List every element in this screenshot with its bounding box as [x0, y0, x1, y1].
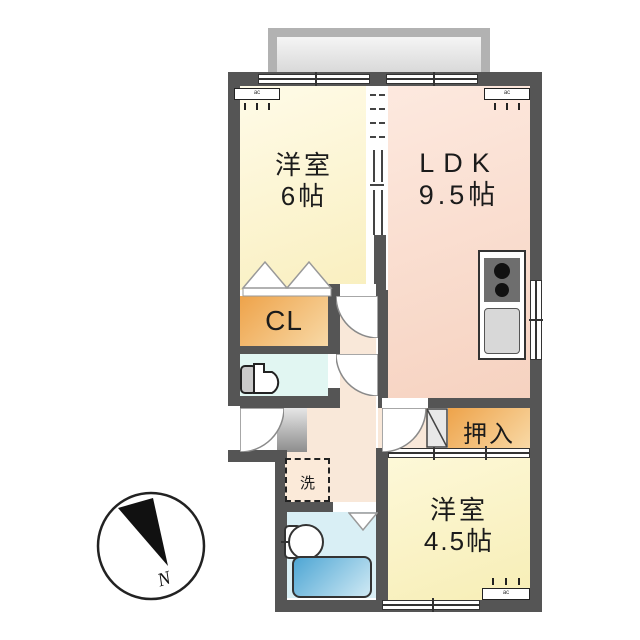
stove-burner-icon — [495, 283, 509, 297]
ldk-label: LDK 9.5帖 — [388, 148, 530, 212]
wall-bath-top — [275, 502, 333, 512]
folding-door — [348, 512, 378, 532]
sliding-window-top-right — [386, 74, 478, 84]
toilet-icon — [238, 360, 294, 398]
aircon-room45: ac — [482, 588, 530, 600]
toilet-swing-door — [336, 354, 378, 396]
laundry-label: 洗 — [285, 472, 330, 493]
compass-north: N — [94, 489, 208, 603]
opening-room6-door — [340, 284, 376, 296]
western-room-45-label: 洋室 4.5帖 — [388, 495, 530, 556]
stove-burner-icon — [494, 263, 510, 279]
opening-bath-door — [333, 502, 376, 512]
sliding-window-top-left — [258, 74, 370, 84]
western-room-6-label: 洋室 6帖 — [240, 150, 368, 211]
diagonal-cabinet — [426, 408, 448, 448]
oshiire-label: 押入 — [448, 414, 530, 449]
bifold-closet-door — [241, 258, 333, 298]
kitchen-sink — [484, 308, 520, 354]
aircon-room6: ac — [234, 88, 280, 100]
wall-ldk-west — [378, 290, 388, 408]
opening-ldk-door — [382, 398, 428, 408]
aircon-ldk: ac — [484, 88, 530, 100]
closet-label: CL — [240, 305, 328, 337]
kitchen-window — [530, 280, 542, 360]
wall-cl-toilet — [228, 346, 340, 354]
ldk-swing-door — [382, 408, 426, 452]
room6-swing-door — [336, 296, 378, 338]
bathtub — [292, 556, 372, 598]
opening-entry-door — [228, 406, 240, 450]
floorplan-canvas: 洗 ac ac ac 洋室 6帖 LDK 9.5帖 CL 押入 洋室 4.5帖 … — [0, 0, 640, 640]
entrance-door — [240, 408, 284, 452]
sliding-window-bottom — [382, 600, 480, 610]
